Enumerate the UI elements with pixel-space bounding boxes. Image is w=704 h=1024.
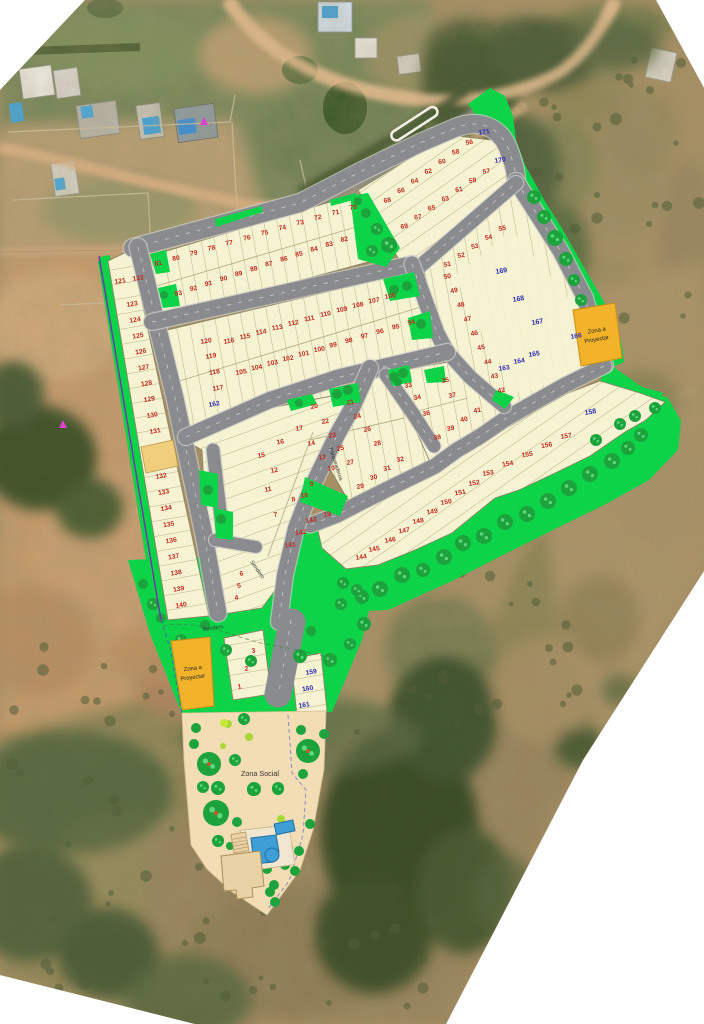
svg-text:37: 37 — [448, 392, 457, 400]
svg-text:67: 67 — [414, 214, 423, 222]
svg-text:44: 44 — [484, 358, 493, 366]
svg-text:41: 41 — [473, 407, 482, 415]
svg-text:87: 87 — [265, 260, 274, 268]
svg-text:57: 57 — [482, 168, 491, 176]
svg-text:89: 89 — [235, 270, 244, 278]
svg-text:53: 53 — [471, 243, 480, 251]
svg-text:52: 52 — [457, 252, 466, 260]
svg-text:15: 15 — [257, 452, 266, 460]
svg-text:39: 39 — [446, 425, 455, 433]
svg-text:75: 75 — [261, 229, 270, 237]
svg-text:35: 35 — [441, 377, 450, 385]
svg-text:22: 22 — [321, 418, 330, 426]
svg-text:45: 45 — [477, 344, 486, 352]
svg-text:79: 79 — [190, 250, 199, 258]
svg-text:66: 66 — [397, 187, 406, 195]
svg-text:14: 14 — [307, 440, 316, 448]
svg-text:96: 96 — [376, 328, 385, 336]
svg-text:69: 69 — [400, 223, 409, 231]
svg-text:62: 62 — [424, 168, 433, 176]
svg-text:33: 33 — [404, 382, 413, 390]
svg-text:70: 70 — [349, 204, 358, 212]
svg-text:34: 34 — [413, 394, 422, 402]
svg-text:60: 60 — [438, 158, 447, 166]
svg-text:73: 73 — [296, 219, 305, 227]
svg-text:85: 85 — [295, 250, 304, 258]
svg-text:19: 19 — [323, 511, 332, 519]
svg-text:71: 71 — [331, 209, 340, 217]
svg-text:43: 43 — [490, 373, 499, 381]
svg-text:25: 25 — [336, 445, 345, 453]
svg-text:46: 46 — [470, 330, 479, 338]
svg-text:61: 61 — [455, 186, 464, 194]
svg-text:77: 77 — [225, 239, 234, 247]
svg-text:74: 74 — [278, 224, 287, 232]
svg-text:32: 32 — [396, 456, 405, 464]
svg-text:47: 47 — [463, 316, 472, 324]
svg-text:64: 64 — [410, 177, 419, 185]
svg-text:17: 17 — [295, 425, 304, 433]
svg-text:83: 83 — [325, 241, 334, 249]
svg-text:18: 18 — [300, 492, 309, 500]
svg-text:13: 13 — [318, 454, 327, 462]
svg-text:54: 54 — [484, 234, 493, 242]
svg-text:50: 50 — [443, 273, 452, 281]
svg-text:Zona Social: Zona Social — [241, 769, 279, 778]
svg-text:92: 92 — [189, 285, 198, 293]
svg-text:91: 91 — [204, 280, 213, 288]
svg-text:51: 51 — [443, 261, 452, 269]
svg-text:56: 56 — [465, 139, 474, 147]
svg-text:93: 93 — [174, 290, 183, 298]
svg-text:68: 68 — [383, 197, 392, 205]
svg-text:63: 63 — [441, 195, 450, 203]
svg-text:23: 23 — [328, 432, 337, 440]
svg-text:97: 97 — [360, 332, 369, 340]
svg-text:36: 36 — [422, 410, 431, 418]
svg-text:76: 76 — [243, 234, 252, 242]
svg-text:86: 86 — [280, 255, 289, 263]
svg-text:94: 94 — [407, 319, 416, 327]
svg-text:55: 55 — [498, 225, 507, 233]
svg-text:99: 99 — [329, 341, 338, 349]
svg-text:81: 81 — [154, 260, 163, 268]
svg-text:20: 20 — [310, 403, 319, 411]
svg-text:38: 38 — [433, 434, 442, 442]
svg-text:29: 29 — [356, 483, 365, 491]
svg-text:48: 48 — [457, 301, 466, 309]
svg-text:40: 40 — [460, 416, 469, 424]
svg-text:31: 31 — [383, 465, 392, 473]
svg-text:90: 90 — [219, 275, 228, 283]
svg-text:95: 95 — [392, 323, 401, 331]
svg-text:84: 84 — [310, 246, 319, 254]
svg-text:28: 28 — [373, 440, 382, 448]
svg-text:21: 21 — [346, 399, 355, 407]
svg-text:24: 24 — [353, 413, 362, 421]
svg-text:10: 10 — [327, 465, 336, 473]
svg-text:59: 59 — [468, 177, 477, 185]
svg-text:82: 82 — [340, 236, 349, 244]
svg-text:26: 26 — [363, 426, 372, 434]
svg-text:78: 78 — [207, 244, 216, 252]
svg-text:42: 42 — [497, 387, 506, 395]
svg-text:49: 49 — [450, 287, 459, 295]
svg-text:72: 72 — [314, 214, 323, 222]
svg-text:98: 98 — [345, 337, 354, 345]
svg-text:16: 16 — [276, 438, 285, 446]
svg-text:58: 58 — [451, 148, 460, 156]
svg-text:65: 65 — [427, 204, 436, 212]
svg-text:88: 88 — [250, 265, 259, 273]
svg-text:80: 80 — [172, 255, 181, 263]
svg-text:12: 12 — [270, 467, 279, 475]
svg-text:27: 27 — [346, 459, 355, 467]
svg-text:30: 30 — [369, 474, 378, 482]
